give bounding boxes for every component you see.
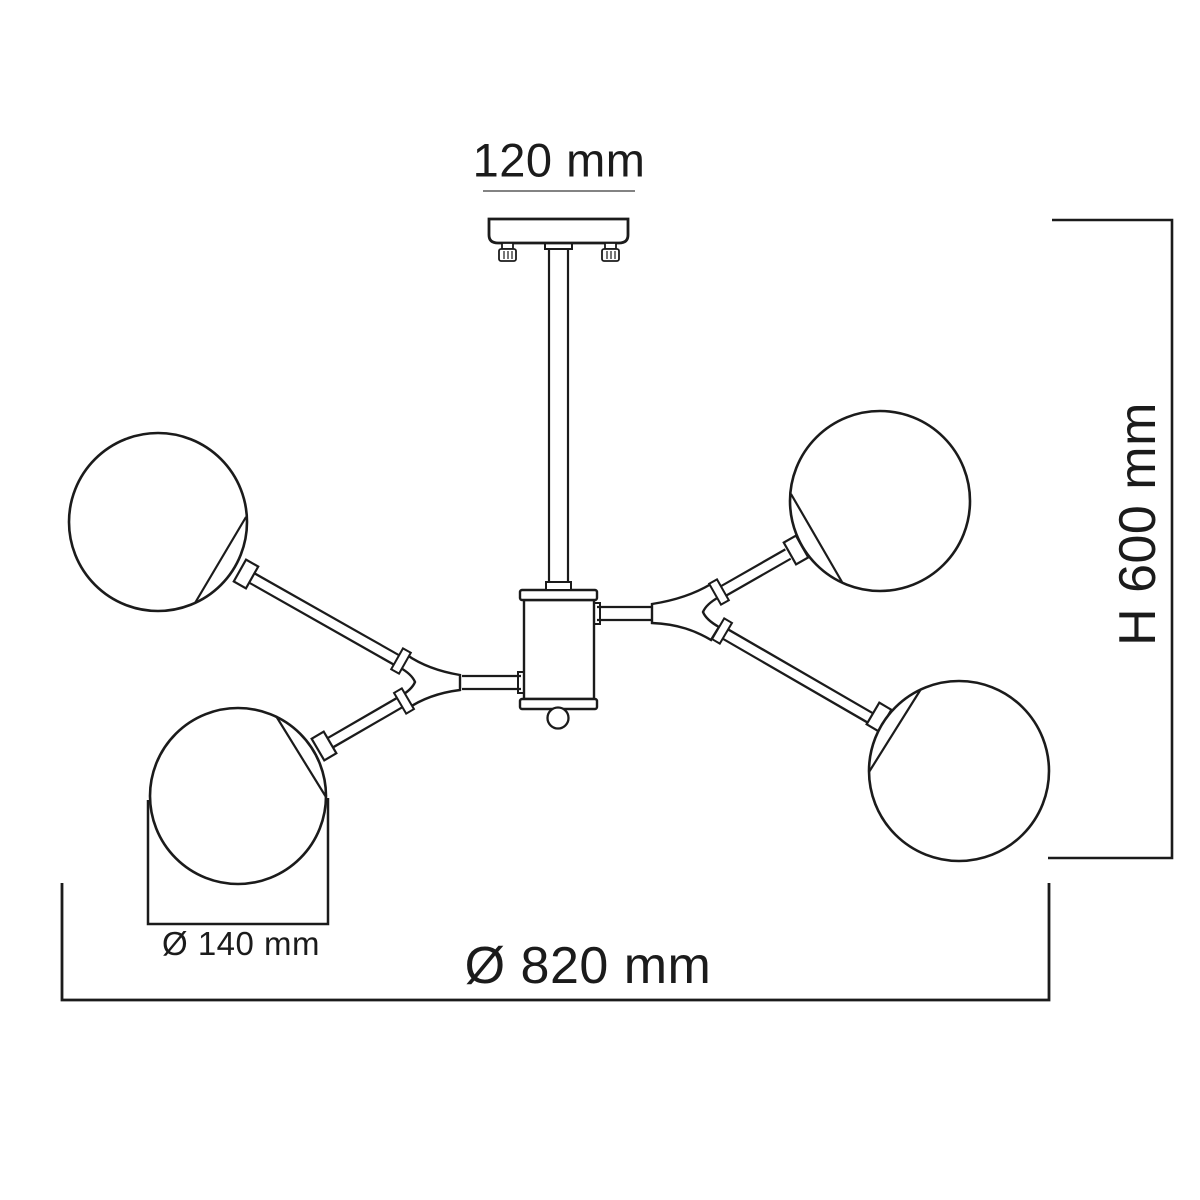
rod-lower-left [328,699,406,744]
ceiling-canopy [489,219,628,261]
canopy-screw-right [602,243,619,261]
rod-upper-right [718,553,790,594]
dim-label-overall-diameter: Ø 820 mm [465,936,712,996]
canopy-plate [489,219,628,243]
dim-label-canopy-width: 120 mm [473,133,646,188]
y-connector-right [652,584,719,640]
hub-body [524,600,594,699]
globe-bottom-right [869,681,1049,861]
central-hub [520,590,597,729]
rod-lower-right [720,631,874,720]
dimension-drawing-page: 120 mm H 600 mm Ø 820 mm Ø 140 mm [0,0,1200,1200]
down-rod-bottom-collar [546,582,571,590]
hub-top-cap [520,590,597,600]
globe-top-right [790,411,970,591]
dim-label-shade-diameter: Ø 140 mm [162,925,320,963]
canopy-screw-left [499,243,516,261]
globe-bottom-left [150,708,326,884]
rod-upper-left [250,577,402,663]
down-rod [545,242,572,590]
finial-ball [548,708,569,729]
globe-top-left [69,433,247,611]
dim-label-height: H 600 mm [1108,402,1168,646]
